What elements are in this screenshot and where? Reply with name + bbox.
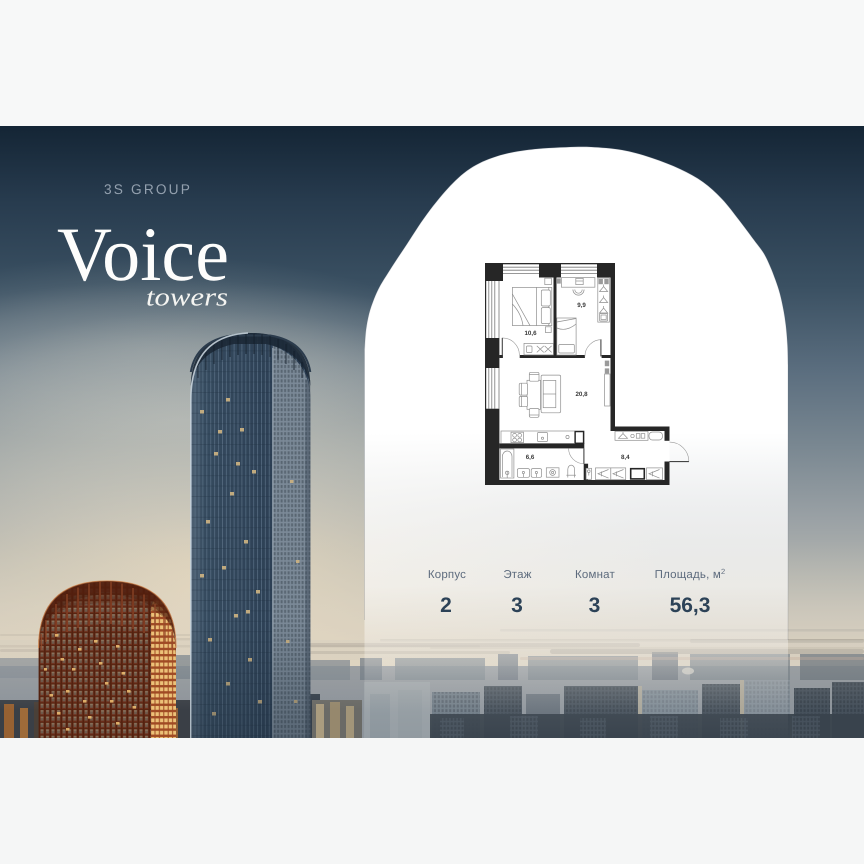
svg-text:9,9: 9,9 (577, 302, 586, 309)
svg-text:10,6: 10,6 (524, 330, 537, 337)
svg-text:8,4: 8,4 (621, 454, 630, 461)
svg-text:Площадь, м2: Площадь, м2 (655, 567, 726, 581)
svg-text:Этаж: Этаж (503, 569, 531, 581)
svg-text:3: 3 (511, 594, 523, 617)
svg-text:6,6: 6,6 (526, 454, 535, 461)
svg-text:towers: towers (146, 283, 228, 312)
svg-text:Комнат: Комнат (575, 569, 615, 581)
svg-text:2: 2 (440, 594, 452, 617)
svg-text:56,3: 56,3 (670, 594, 711, 617)
svg-text:3: 3 (589, 594, 601, 617)
svg-text:3S GROUP: 3S GROUP (104, 181, 192, 197)
svg-text:20,8: 20,8 (575, 391, 588, 398)
svg-text:Корпус: Корпус (428, 569, 466, 581)
